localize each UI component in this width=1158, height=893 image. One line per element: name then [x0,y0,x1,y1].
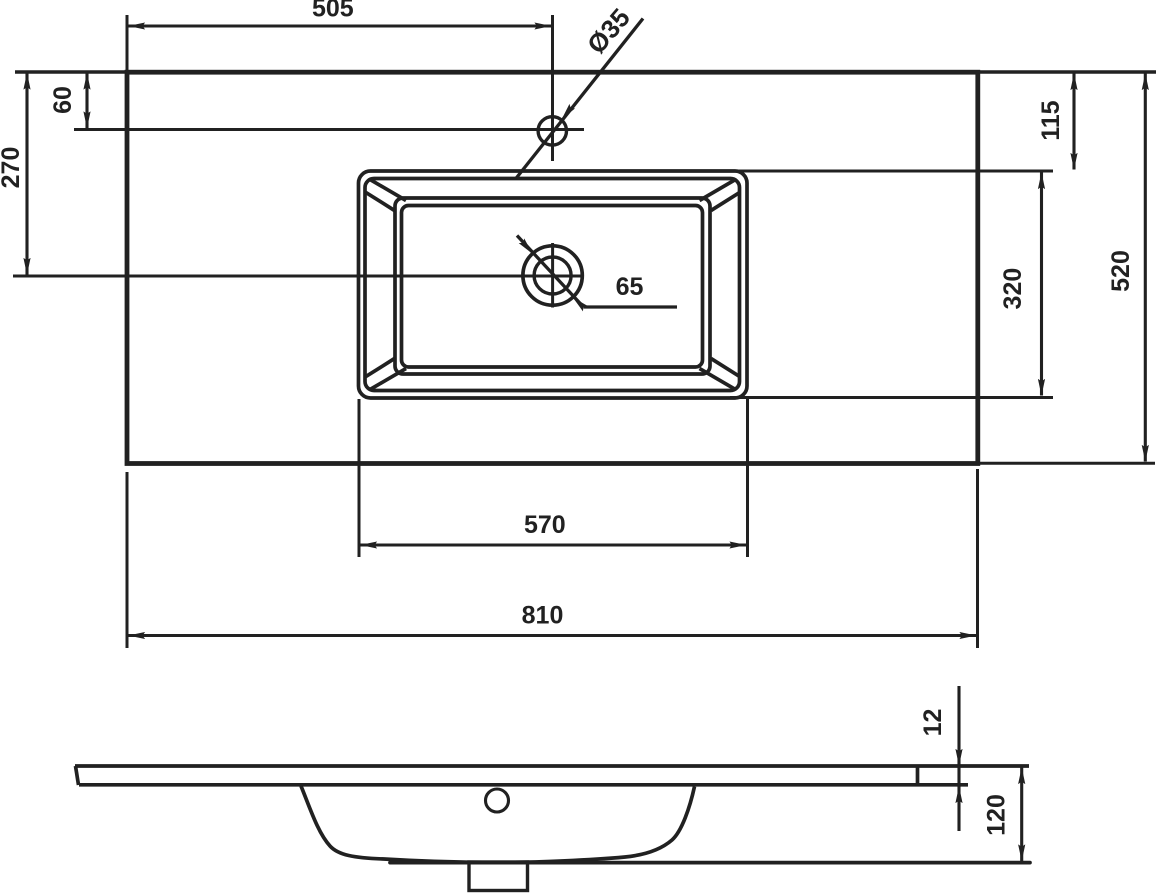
svg-text:810: 810 [522,602,564,630]
svg-text:Ø35: Ø35 [581,3,636,60]
svg-text:570: 570 [524,511,566,539]
svg-text:505: 505 [312,0,354,23]
svg-text:65: 65 [616,273,644,301]
svg-text:115: 115 [1037,100,1065,140]
svg-text:12: 12 [919,709,947,737]
svg-text:320: 320 [999,268,1027,310]
svg-text:270: 270 [0,147,25,189]
svg-text:120: 120 [983,794,1011,836]
svg-text:60: 60 [49,86,77,114]
svg-text:520: 520 [1107,250,1135,292]
